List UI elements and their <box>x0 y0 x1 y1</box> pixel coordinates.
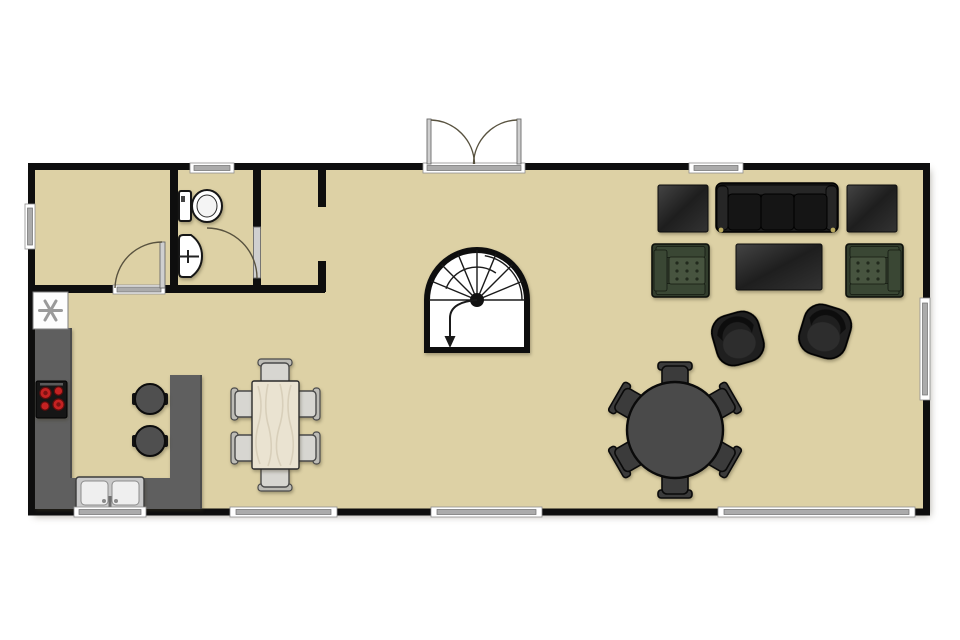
floor-plan-canvas <box>0 0 960 640</box>
dining-chair-bottom <box>258 466 292 491</box>
entry-door-leaf-left <box>427 119 431 164</box>
entry-door-leaf-right <box>517 119 521 164</box>
sofa-cushion-2 <box>761 194 794 230</box>
sink-tap-left <box>102 499 106 503</box>
sofa-foot-left <box>719 228 724 233</box>
toilet-tank <box>179 191 191 221</box>
window-bottom-sink <box>74 507 146 517</box>
sofa-cushion-1 <box>728 194 761 230</box>
window-bottom-dining <box>230 507 337 517</box>
burner-1-center <box>43 391 47 395</box>
entry-door-arc-left <box>431 120 475 164</box>
round-table-set <box>608 362 743 498</box>
wall-hall-living-upper <box>318 167 326 207</box>
dining-table <box>252 381 299 469</box>
side-table-left <box>658 185 708 232</box>
floor-plan-drawing <box>0 0 960 640</box>
entry-double-door <box>423 119 525 173</box>
stool-2-seat <box>135 426 165 456</box>
bathroom-sink <box>179 235 202 277</box>
window-bottom-center <box>431 507 542 517</box>
peninsula-edge-line <box>200 375 202 509</box>
burner-3 <box>41 402 49 410</box>
stool-1-seat <box>135 384 165 414</box>
sink-faucet <box>109 496 112 508</box>
kitchen-sink <box>76 477 144 510</box>
cooktop <box>36 381 67 418</box>
sink-tap-right <box>114 499 118 503</box>
room-door-leaf <box>160 242 165 288</box>
toilet-flush-button <box>181 196 185 202</box>
toilet-bowl-inner <box>197 195 217 217</box>
dining-chair-top <box>258 359 292 384</box>
peninsula-counter <box>170 375 202 479</box>
sofa-cushion-3 <box>794 194 827 230</box>
wall-room-bathroom <box>170 167 178 292</box>
sofa <box>716 183 838 232</box>
window-top-bathroom <box>190 163 234 173</box>
staircase <box>427 250 527 350</box>
armchair-left-back <box>654 250 667 291</box>
window-top-living <box>689 163 743 173</box>
armchair-right <box>846 244 903 297</box>
cooktop-body <box>36 381 67 418</box>
coffee-table <box>736 244 822 290</box>
sofa-arm-left <box>717 186 728 230</box>
toilet <box>179 190 222 222</box>
sofa-foot-right <box>831 228 836 233</box>
counter-edge-line <box>70 328 72 478</box>
wall-horizontal-right <box>165 285 325 293</box>
burner-4-center <box>56 402 60 406</box>
entry-door-arc-right <box>474 120 518 164</box>
cooktop-controls <box>40 383 63 386</box>
armchair-left <box>652 244 709 297</box>
ceiling-fan-symbol <box>33 292 68 329</box>
window-right-wall <box>920 298 930 400</box>
sofa-arm-right <box>826 186 837 230</box>
side-table-right <box>847 185 897 232</box>
burner-2 <box>54 387 62 395</box>
window-bottom-right <box>718 507 915 517</box>
window-left-wall <box>25 204 35 249</box>
wall-bathroom-hall-upper <box>253 167 261 229</box>
armchair-right-back <box>888 250 901 291</box>
round-table <box>627 382 723 478</box>
